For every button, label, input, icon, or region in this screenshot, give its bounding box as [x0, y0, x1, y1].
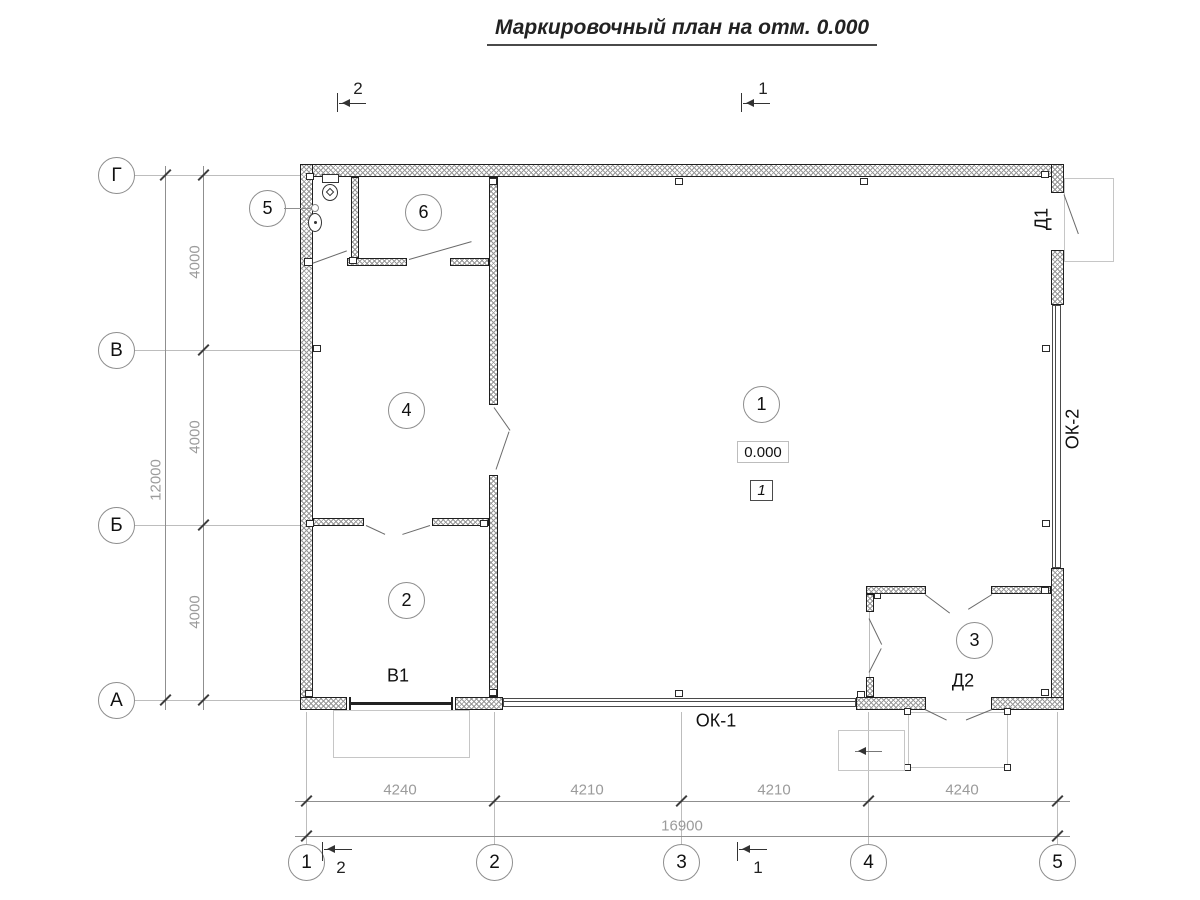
wall-exterior-right-bottom: [1051, 568, 1064, 710]
door-swing-wc: [312, 250, 347, 264]
room-circle-2: 2: [388, 582, 425, 619]
wall-vestibule-stub-upper: [866, 594, 874, 612]
dim-4210-2: 4210: [757, 782, 790, 799]
wall-exterior-left: [300, 164, 313, 710]
label-gate-b1: В1: [387, 666, 409, 687]
toilet-tank-icon: [322, 174, 339, 183]
elevation-mark: 0.000: [737, 441, 789, 463]
porch-corner-marker: [904, 764, 911, 771]
axis-label-1: 1: [301, 852, 312, 874]
dim-line-horizontal-total: [295, 836, 1070, 837]
axis-circle-b: Б: [98, 507, 135, 544]
room-label-2: 2: [401, 590, 411, 611]
axis-label-4: 4: [863, 852, 874, 874]
axis-circle-1: 1: [288, 844, 325, 881]
node-marker: [480, 520, 488, 527]
porch-corner-marker: [904, 708, 911, 715]
wall-exterior-right-top-stub: [1051, 164, 1064, 193]
room-circle-3: 3: [956, 622, 993, 659]
section-2-bottom-label: 2: [336, 858, 345, 878]
section-2-top-label: 2: [353, 79, 362, 99]
door-swing-d2-top-left: [925, 594, 950, 613]
porch-d2: [908, 712, 1008, 768]
door-swing-axisb-left: [366, 525, 385, 535]
door-swing-vestibule-left-b: [869, 648, 882, 673]
wall-axisb-left: [313, 518, 364, 526]
room-circle-5: 5: [249, 190, 286, 227]
axis-line-g: [133, 175, 300, 176]
axis-line-2: [494, 712, 495, 845]
axis-circle-3: 3: [663, 844, 700, 881]
room-label-1: 1: [756, 394, 766, 415]
axis-label-5: 5: [1052, 852, 1063, 874]
axis-label-3: 3: [676, 852, 687, 874]
porch-d1: [1064, 178, 1114, 262]
node-marker: [860, 178, 868, 185]
sink-drain-icon: [314, 221, 317, 224]
axis-label-2: 2: [489, 852, 500, 874]
dim-4000-3: 4000: [187, 595, 204, 628]
node-marker: [1042, 345, 1050, 352]
room-label-5: 5: [262, 198, 272, 219]
porch-corner-marker: [1004, 708, 1011, 715]
node-marker: [306, 520, 314, 527]
node-marker: [489, 178, 497, 185]
window-ok2: [1052, 305, 1061, 568]
entry-direction-arrow-icon: [855, 751, 882, 752]
axis-circle-v: В: [98, 332, 135, 369]
room-circle-1: 1: [743, 386, 780, 423]
node-marker: [1041, 171, 1049, 178]
label-door-d2: Д2: [952, 671, 974, 692]
axis-circle-a: А: [98, 682, 135, 719]
drawing-sheet: Маркировочный план на отм. 0.000 2 1 400…: [0, 0, 1200, 900]
room-circle-4: 4: [388, 392, 425, 429]
section-1-top-arrow-icon: [743, 103, 770, 104]
axis-label-v: В: [110, 340, 123, 362]
window-ok1: [503, 698, 856, 707]
section-1-bottom-arrow-icon: [739, 849, 767, 850]
wall-exterior-bottom-3: [856, 697, 926, 710]
floor-type-mark: 1: [750, 480, 773, 501]
room-label-3: 3: [969, 630, 979, 651]
label-door-d1: Д1: [1032, 208, 1053, 230]
node-marker: [1042, 520, 1050, 527]
section-1-top-label: 1: [758, 79, 767, 99]
wall-wc-right: [351, 177, 359, 258]
door-jamb-wc: [304, 258, 313, 266]
section-1-bottom-label: 1: [753, 858, 762, 878]
label-window-ok2: ОК-2: [1063, 409, 1084, 450]
axis-label-b: Б: [110, 515, 122, 537]
dim-16900: 16900: [661, 818, 703, 835]
dim-4210-1: 4210: [570, 782, 603, 799]
axis-circle-5: 5: [1039, 844, 1076, 881]
door-swing-axisb-right: [402, 525, 430, 535]
node-marker: [305, 690, 313, 697]
axis-line-b: [133, 525, 300, 526]
room-label-6: 6: [418, 202, 428, 223]
wall-exterior-right-mid: [1051, 250, 1064, 305]
node-marker: [675, 178, 683, 185]
node-marker: [349, 257, 357, 264]
axis-line-5: [1057, 712, 1058, 845]
axis-label-g: Г: [111, 165, 121, 187]
node-marker: [1041, 587, 1049, 594]
section-2-bottom-arrow-icon: [324, 849, 352, 850]
axis-circle-2: 2: [476, 844, 513, 881]
room5-leader-dot: [311, 204, 319, 212]
node-marker: [675, 690, 683, 697]
node-marker: [313, 345, 321, 352]
dim-4000-2: 4000: [187, 420, 204, 453]
gate-b1-tick-left: [349, 697, 351, 710]
drawing-title: Маркировочный план на отм. 0.000: [487, 16, 877, 46]
axis-circle-4: 4: [850, 844, 887, 881]
floor-type-value: 1: [757, 482, 765, 499]
wall-vestibule-stub-lower: [866, 677, 874, 697]
porch-corner-marker: [1004, 764, 1011, 771]
dim-line-vertical-total: [165, 166, 166, 710]
room-circle-6: 6: [405, 194, 442, 231]
dim-4240-1: 4240: [383, 782, 416, 799]
dim-4000-1: 4000: [187, 245, 204, 278]
node-marker: [306, 173, 314, 180]
axis-line-1: [306, 712, 307, 845]
wall-exterior-bottom-2: [455, 697, 503, 710]
node-marker: [489, 689, 497, 696]
elevation-value: 0.000: [744, 444, 782, 461]
gate-b1-tick-right: [451, 697, 453, 710]
wall-axis2-lower: [489, 475, 498, 697]
axis-label-a: А: [110, 690, 123, 712]
door-swing-axis2-upper: [494, 407, 511, 431]
wall-room6-bottom-right: [450, 258, 489, 266]
wall-exterior-top: [300, 164, 1064, 177]
door-swing-d2-top-right: [968, 594, 992, 610]
wall-axis2-upper: [489, 177, 498, 405]
dim-12000: 12000: [148, 459, 165, 501]
axis-circle-g: Г: [98, 157, 135, 194]
label-window-ok1: ОК-1: [696, 711, 737, 732]
node-marker: [874, 593, 881, 599]
door-swing-axis2-lower: [496, 432, 510, 470]
axis-line-a: [133, 700, 300, 701]
gate-b1-leaf: [350, 702, 452, 705]
wall-exterior-bottom-4: [991, 697, 1064, 710]
dim-4240-2: 4240: [945, 782, 978, 799]
wall-exterior-bottom-1: [300, 697, 347, 710]
node-marker: [857, 691, 865, 698]
section-2-top-arrow-icon: [339, 103, 366, 104]
axis-line-v: [133, 350, 300, 351]
gate-b1-apron: [333, 710, 470, 758]
node-marker: [1041, 689, 1049, 696]
room5-leader-line: [284, 208, 311, 209]
door-swing-vestibule-left-a: [869, 618, 883, 645]
room-label-4: 4: [401, 400, 411, 421]
